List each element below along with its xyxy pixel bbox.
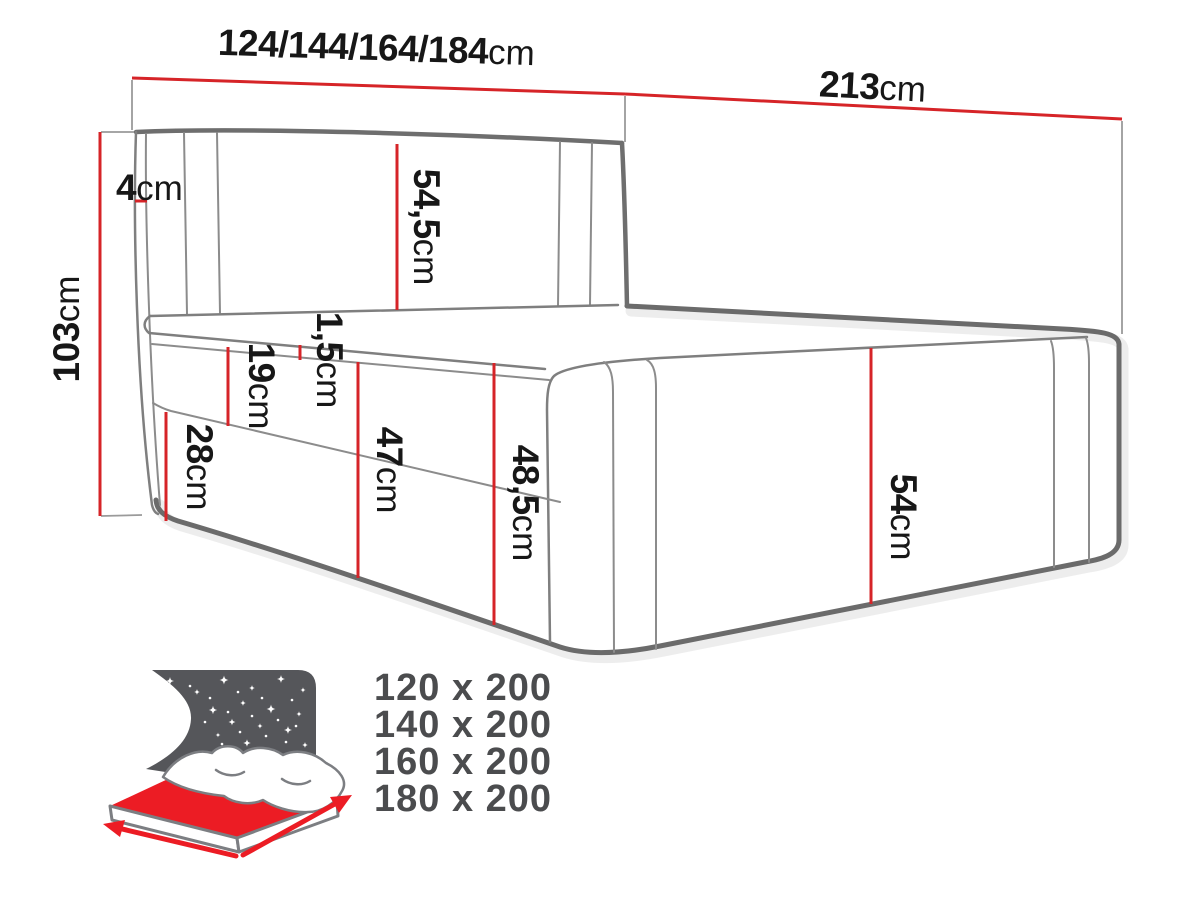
dim-line-width — [132, 78, 625, 94]
star-dot — [295, 725, 298, 728]
bed-outline-shadow — [160, 311, 1123, 658]
star-dot — [176, 693, 179, 696]
star-dot — [189, 685, 192, 688]
star-icon — [165, 739, 171, 745]
dim-label-54-5: 54,5cm — [406, 169, 447, 286]
star-dot — [291, 699, 294, 702]
dim-label-28: 28cm — [179, 424, 220, 511]
size-option: 140 x 200 — [374, 704, 552, 746]
size-option: 120 x 200 — [374, 667, 552, 709]
size-options-list: 120 x 200 140 x 200 160 x 200 180 x 200 — [374, 667, 552, 820]
dim-label-47: 47cm — [369, 427, 410, 514]
dim-label-height: 103cm — [46, 276, 87, 383]
size-option: 180 x 200 — [374, 778, 552, 820]
star-dot — [277, 719, 280, 722]
dim-label-19: 19cm — [241, 343, 282, 430]
star-icon — [180, 703, 186, 709]
arrow-head-left-icon — [103, 820, 125, 837]
headboard-right-edge — [622, 143, 627, 306]
extension-lines — [101, 80, 1122, 516]
headboard-top-edge — [136, 130, 622, 143]
bed-dimension-diagram: 124/144/164/184cm 213cm 103cm 4cm 54,5cm… — [0, 0, 1200, 900]
dim-label-54: 54cm — [883, 474, 924, 561]
star-dot — [204, 721, 207, 724]
star-dot — [221, 743, 224, 746]
star-dot — [159, 732, 162, 735]
storage-bed-icon — [103, 670, 352, 856]
dim-label-width: 124/144/164/184cm — [217, 22, 535, 73]
star-dot — [251, 715, 254, 718]
near-corner-seams — [604, 360, 656, 652]
star-dot — [227, 711, 230, 714]
foot-corner-seams — [1051, 338, 1089, 567]
headboard-seams — [184, 133, 592, 314]
side-top-edge — [547, 337, 1087, 642]
star-dot — [265, 735, 268, 738]
star-dot — [285, 741, 288, 744]
star-dot — [239, 731, 242, 734]
dim-label-1-5: 1,5cm — [309, 312, 350, 409]
dim-label-4: 4cm — [116, 167, 183, 208]
bed-line-drawing — [135, 130, 1123, 657]
dim-label-depth: 213cm — [818, 63, 927, 109]
star-dot — [237, 691, 240, 694]
size-option: 160 x 200 — [374, 741, 552, 783]
star-dot — [209, 697, 212, 700]
star-dot — [261, 697, 264, 700]
dim-label-48-5: 48,5cm — [505, 445, 546, 562]
